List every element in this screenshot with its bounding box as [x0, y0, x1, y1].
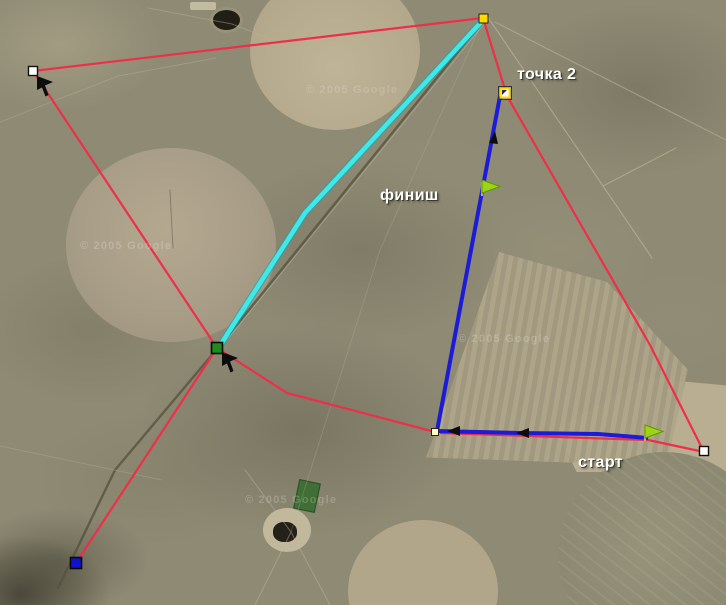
route-leg-finish-corner	[217, 348, 435, 432]
route-arrow-northwest-icon	[37, 76, 53, 97]
route-leg-start-corner	[440, 433, 704, 452]
cursor-arrow-icon	[222, 352, 238, 373]
imagery-watermark: © 2005 Google	[458, 333, 550, 345]
route-point-southwest-marker[interactable]	[71, 558, 82, 569]
route-leg-top-start	[483, 18, 704, 452]
route-point-top-marker[interactable]	[479, 14, 488, 23]
road-east-tracks	[487, 16, 676, 258]
roads-group	[0, 8, 726, 605]
route-point-start-marker[interactable]	[700, 447, 709, 456]
road-runway-edge	[227, 18, 489, 340]
flag-start-cloth	[645, 425, 663, 438]
route-leg-northwest-top	[33, 18, 483, 71]
track-corner-marker[interactable]	[432, 429, 439, 436]
flag-point2-cloth	[482, 180, 500, 193]
waypoint-finish-marker[interactable]	[212, 343, 223, 354]
trail-southwest	[0, 446, 162, 480]
waypoint-point2-marker[interactable]	[501, 89, 510, 98]
imagery-watermark: © 2005 Google	[245, 494, 337, 506]
satellite-map[interactable]: точка 2 финиш старт © 2005 Google © 2005…	[0, 0, 726, 605]
imagery-watermark: © 2005 Google	[306, 84, 398, 96]
route-legs-group	[33, 18, 704, 563]
point2-label: точка 2	[517, 67, 576, 83]
route-leg-west	[33, 71, 217, 563]
finish-label: финиш	[380, 188, 439, 204]
route-point-northwest-marker[interactable]	[29, 67, 38, 76]
start-label: старт	[578, 455, 623, 471]
imagery-watermark: © 2005 Google	[80, 240, 172, 252]
trail-center	[291, 20, 483, 532]
gps-track-line	[437, 96, 648, 438]
flag-point2-icon[interactable]	[482, 180, 500, 196]
facility-roads	[245, 470, 330, 605]
